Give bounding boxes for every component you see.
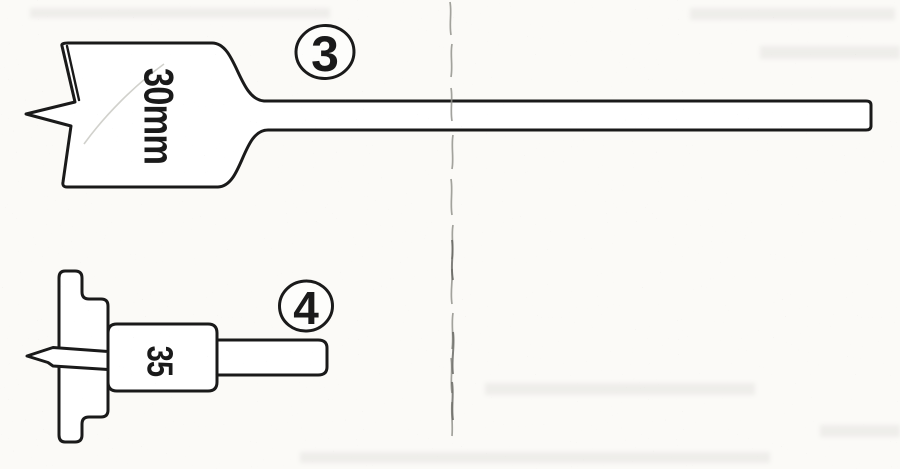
spade-size-label: 30mm: [134, 68, 181, 164]
drill-bits-figure: 30mm 3 35 4: [0, 0, 900, 469]
scanned-manual-page: 30mm 3 35 4: [0, 0, 900, 469]
badge-number: 4: [293, 282, 319, 334]
badge-number: 3: [311, 26, 339, 82]
forstner-shank: [217, 340, 327, 375]
forstner-size-label: 35: [140, 346, 181, 377]
